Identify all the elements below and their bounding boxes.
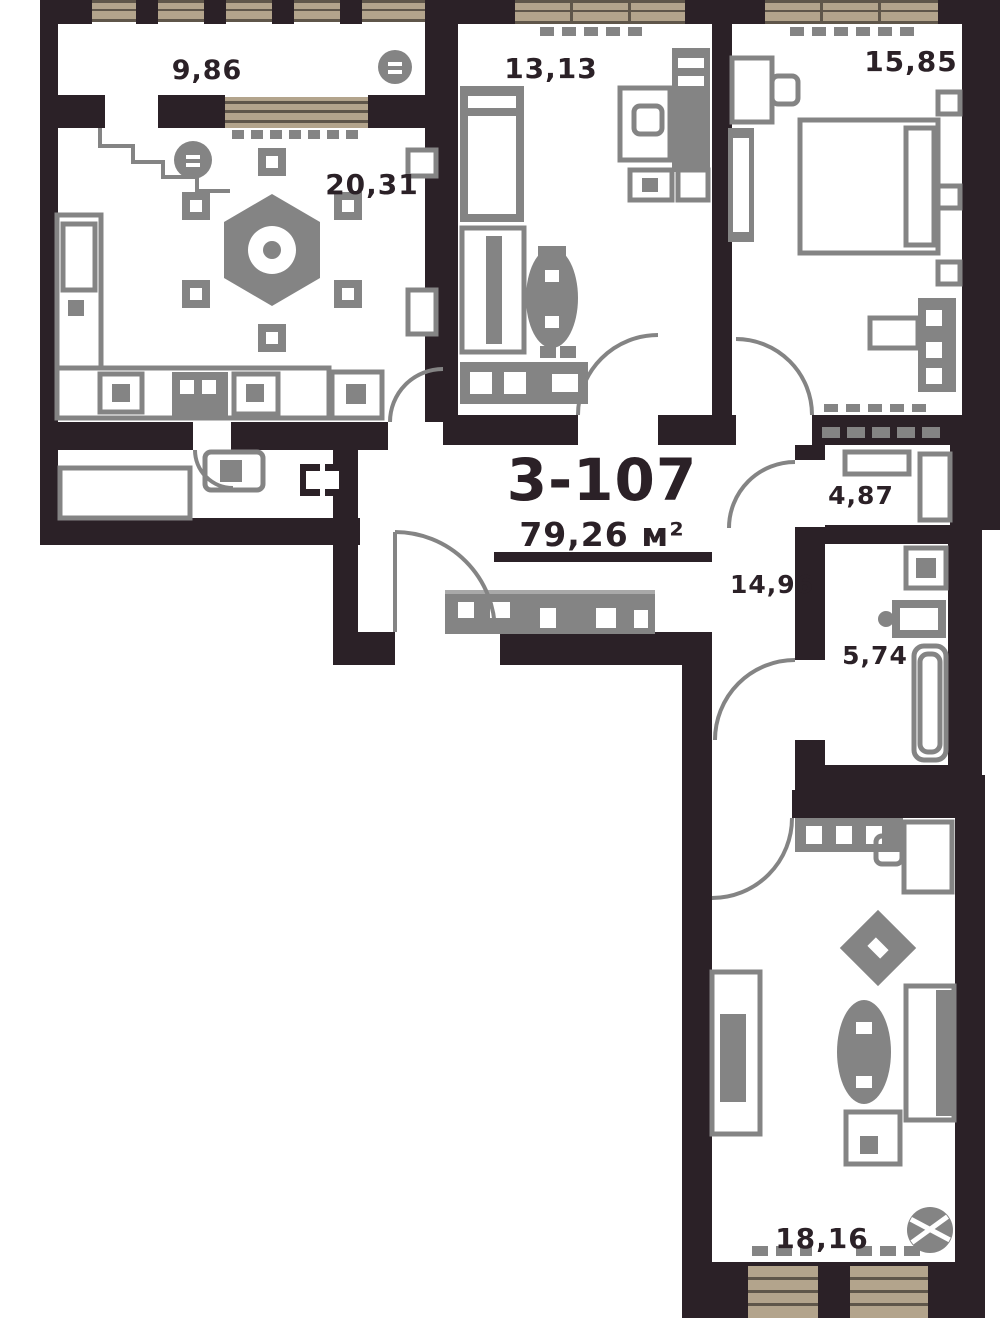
floor-plan: 9,86 20,31 13,13 15,85 4,87 14,96 5,74 1… (0, 0, 1000, 1320)
room-area-label-balcony: 9,86 (172, 55, 243, 86)
unit-area-underline (494, 552, 712, 562)
room-area-label-kitchen-living: 20,31 (325, 168, 419, 201)
room-area-label-bathroom-small: 4,87 (828, 481, 894, 510)
room-area-label-bedroom-bottom: 18,16 (775, 1222, 869, 1255)
furniture-bedroom-top-right (728, 27, 960, 412)
furniture-bedroom-bottom (712, 818, 954, 1256)
furniture-balcony (378, 50, 412, 84)
room-area-label-bathroom-large: 5,74 (842, 641, 908, 670)
unit-area: 79,26 м² (519, 515, 684, 554)
room-area-label-bedroom-top-right: 15,85 (864, 45, 958, 78)
room-area-label-bedroom-middle: 13,13 (504, 52, 598, 85)
unit-number: 3-107 (507, 446, 698, 514)
room-area-label-hallway: 14,96 (730, 570, 814, 599)
